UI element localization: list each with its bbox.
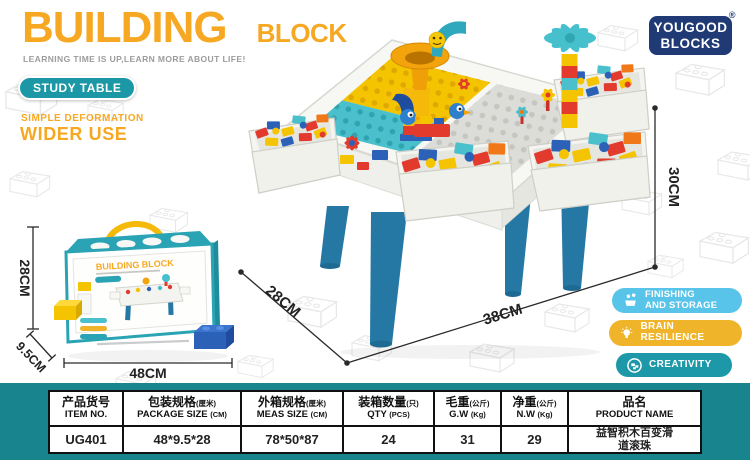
toy-flower <box>345 136 360 151</box>
brand-line1: YOUGOOD <box>653 20 727 35</box>
storage-bin-left <box>249 110 340 193</box>
packaging-box-illustration: BUILDING BLOCK <box>54 224 234 362</box>
spec-col-gross-weight: 毛重(公斤) G.W (Kg) 31 <box>435 392 502 452</box>
title-building: BUILDING <box>22 6 227 50</box>
product-sheet: BUILDING BLOCK <box>0 0 750 460</box>
loose-yellow-brick <box>54 300 82 320</box>
spec-table: 产品货号 ITEM NO. UG401 包装规格(厘米) PACKAGE SIZ… <box>48 390 702 454</box>
spec-col-qty: 装箱数量(只) QTY (PCS) 24 <box>344 392 435 452</box>
feature-text-line1: SIMPLE DEFORMATION <box>21 113 144 124</box>
badge-creativity-label: CREATIVITY <box>649 360 712 371</box>
loose-blue-brick <box>194 325 234 349</box>
dimension-label-box-width: 48CM <box>129 365 166 381</box>
title-block: BLOCK <box>257 18 347 49</box>
hand-blocks-icon <box>626 357 643 374</box>
brand-line2: BLOCKS <box>661 36 721 51</box>
study-table-badge: STUDY TABLE <box>18 76 136 100</box>
spec-col-meas-size: 外箱规格(厘米) MEAS SIZE (CM) 78*50*87 <box>242 392 344 452</box>
storage-bin-front <box>396 138 514 221</box>
lightbulb-icon <box>619 325 634 342</box>
spec-value-net-weight: 29 <box>502 427 567 452</box>
smiley-ball <box>429 32 445 48</box>
badge-brain-label: BRAIN RESILIENCE <box>640 322 732 344</box>
spec-col-net-weight: 净重(公斤) N.W (Kg) 29 <box>502 392 569 452</box>
spec-col-item-no: 产品货号 ITEM NO. UG401 <box>50 392 124 452</box>
dimension-label-box-height: 28CM <box>17 259 33 296</box>
spec-col-package-size: 包装规格(厘米) PACKAGE SIZE (CM) 48*9.5*28 <box>124 392 242 452</box>
dimension-label-table-depth: 28CM <box>262 282 304 321</box>
feature-text-line2: WIDER USE <box>20 124 127 145</box>
spec-value-meas-size: 78*50*87 <box>242 427 342 452</box>
page-title: BUILDING BLOCK <box>22 6 347 50</box>
feature-badge-creativity: CREATIVITY <box>616 353 732 377</box>
feature-badge-storage: FINISHING AND STORAGE <box>612 288 742 313</box>
spec-value-product-name: 益智积木百变滑道滚珠 <box>569 427 700 452</box>
badge-storage-label-top: FINISHING <box>645 290 717 300</box>
spec-col-product-name: 品名 PRODUCT NAME 益智积木百变滑道滚珠 <box>569 392 700 452</box>
dimension-label-table-height: 30CM <box>665 167 682 207</box>
spec-value-item-no: UG401 <box>50 427 122 452</box>
dimension-label-box-depth: 9.5CM <box>13 339 49 375</box>
storage-bin-icon <box>622 292 639 309</box>
dimension-label-table-width: 38CM <box>481 301 524 329</box>
spec-value-qty: 24 <box>344 427 433 452</box>
registered-trademark-icon: ® <box>729 10 736 20</box>
spec-value-package-size: 48*9.5*28 <box>124 427 240 452</box>
feature-badge-brain: BRAIN RESILIENCE <box>609 320 742 346</box>
tagline: LEARNING TIME IS UP,LEARN MORE ABOUT LIF… <box>23 54 246 64</box>
badge-storage-label-bottom: AND STORAGE <box>645 301 717 311</box>
brand-logo: YOUGOOD BLOCKS ® <box>649 16 732 55</box>
spec-value-gross-weight: 31 <box>435 427 500 452</box>
